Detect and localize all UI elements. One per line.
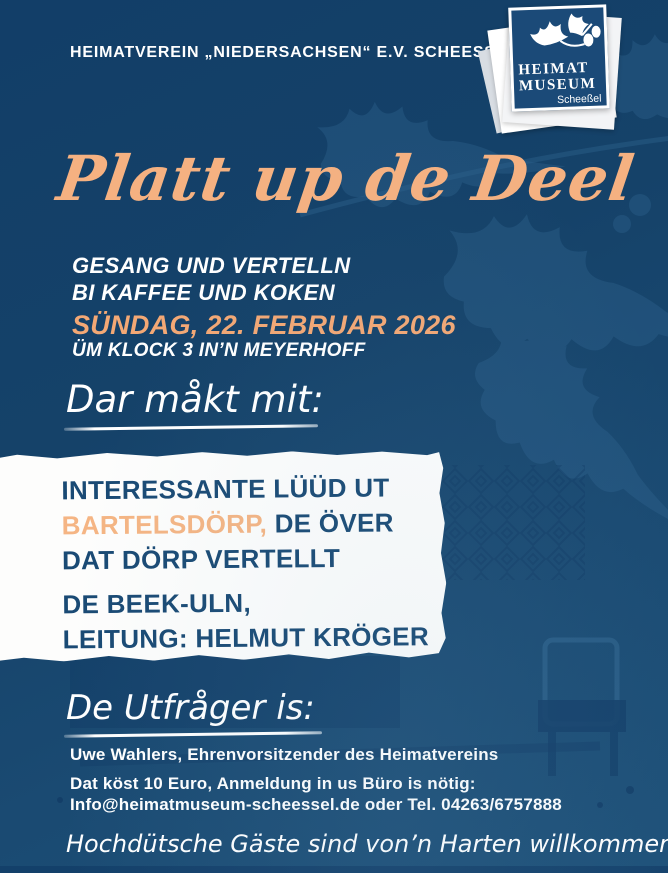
participants-box: INTERESSANTE LÜÜD UT BARTELSDÖRP, DE ÖVE…	[0, 448, 449, 665]
logo-subtitle: Scheeßel	[514, 92, 606, 107]
participant-line-2: BARTELSDÖRP, DE ÖVER	[62, 505, 440, 543]
participants-heading: Dar måkt mit:	[66, 378, 324, 421]
logo-square: HEIMAT MUSEUM Scheeßel	[508, 4, 610, 111]
host-name: Uwe Wahlers, Ehrenvorsitzender des Heima…	[70, 745, 498, 765]
contact-info: Info@heimatmuseum-scheessel.de oder Tel.…	[70, 795, 562, 815]
participant-highlight: BARTELSDÖRP,	[62, 509, 268, 541]
price-info: Dat köst 10 Euro, Anmeldung in us Büro i…	[70, 774, 476, 794]
intro-line-2: BI KAFFEE UND KOKEN	[72, 279, 351, 306]
participant-line-2-rest: DE ÖVER	[267, 507, 394, 538]
participants-underline	[64, 424, 318, 431]
event-date: SÜNDAG, 22. FEBRUAR 2026	[72, 310, 456, 341]
intro-lines: GESANG UND VERTELLN BI KAFFEE UND KOKEN	[72, 252, 351, 306]
museum-logo: HEIMAT MUSEUM Scheeßel	[486, 2, 662, 144]
closing-note: Hochdütsche Gäste sind von’n Harten will…	[66, 830, 668, 858]
logo-title-line2: MUSEUM	[514, 75, 607, 94]
host-underline	[64, 731, 322, 738]
participant-line-3: DAT DÖRP VERTELLT	[62, 540, 440, 578]
host-heading: De Utfråger is:	[66, 688, 315, 728]
oak-branch-acorns-icon	[525, 9, 603, 62]
event-time-place: ÜM KLOCK 3 IN’N MEYERHOFF	[72, 340, 366, 362]
event-title: Platt up de Deel	[53, 142, 623, 215]
org-banner: HEIMATVEREIN „NIEDERSACHSEN“ E.V. SCHEES…	[70, 44, 518, 62]
event-poster: HEIMATVEREIN „NIEDERSACHSEN“ E.V. SCHEES…	[0, 0, 668, 873]
participant-line-5: LEITUNG: HELMUT KRÖGER	[63, 619, 441, 657]
quilt-pattern	[425, 465, 585, 580]
intro-line-1: GESANG UND VERTELLN	[72, 252, 351, 279]
participant-line-4: DE BEEK-ULN,	[62, 584, 440, 622]
participant-line-1: INTERESSANTE LÜÜD UT	[61, 470, 439, 508]
